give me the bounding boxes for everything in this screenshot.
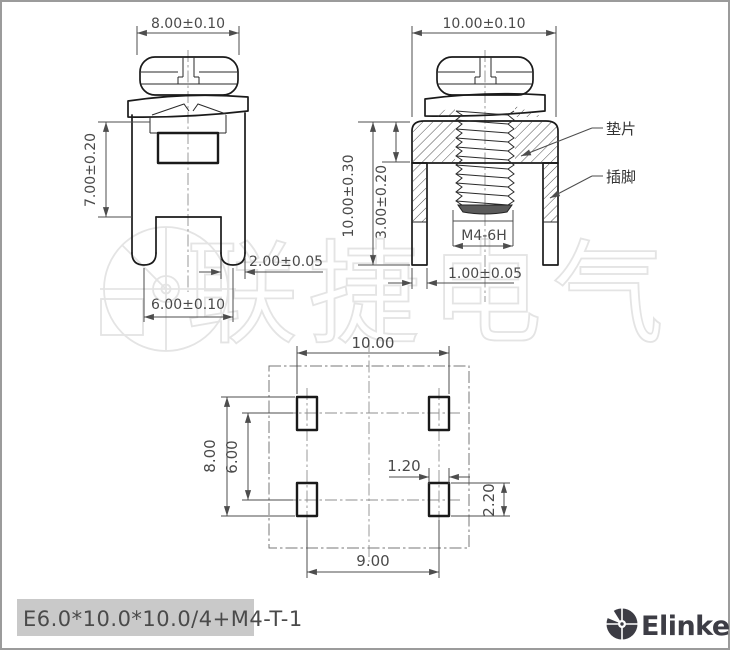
section-dim-washer-width: 10.00±0.10: [412, 16, 556, 117]
front-screw-head: [140, 57, 238, 95]
pin-label: 插脚: [606, 168, 636, 186]
svg-text:1.00±0.05: 1.00±0.05: [448, 266, 522, 282]
section-thread-spec: M4-6H: [453, 210, 513, 246]
front-screw-slot: [178, 57, 199, 84]
brand-logo-icon: [605, 608, 638, 640]
section-screw-slot: [475, 57, 496, 84]
svg-text:10.00±0.30: 10.00±0.30: [341, 155, 357, 238]
footprint-dim-row-pitch: 6.00: [223, 413, 293, 500]
svg-text:6.00: 6.00: [223, 440, 241, 473]
svg-text:10.00: 10.00: [352, 334, 395, 352]
svg-text:1.20: 1.20: [387, 457, 420, 475]
footprint-dim-col-pitch: 9.00: [307, 520, 439, 578]
watermark-text: 联捷电气: [186, 230, 674, 360]
svg-text:3.00±0.20: 3.00±0.20: [374, 165, 390, 239]
label-pin-leader: 插脚: [550, 168, 636, 198]
title-block: E6.0*10.0*10.0/4+M4-T-1: [17, 599, 303, 636]
svg-text:10.00±0.10: 10.00±0.10: [443, 16, 526, 32]
front-dim-head-width: 8.00±0.10: [137, 16, 239, 55]
svg-text:2.20: 2.20: [480, 483, 498, 516]
footprint-pads: [297, 397, 449, 516]
svg-text:M4-6H: M4-6H: [461, 228, 506, 244]
front-dim-body-height: 7.00±0.20: [83, 122, 150, 217]
washer-label: 垫片: [606, 120, 636, 138]
brand-logo: Elinker: [605, 608, 730, 642]
part-number: E6.0*10.0*10.0/4+M4-T-1: [23, 607, 303, 631]
brand-name: Elinker: [641, 611, 730, 642]
cad-drawing-page: 联捷电气: [0, 0, 730, 650]
technical-drawing-svg: 联捷电气: [0, 0, 730, 650]
svg-text:6.00±0.10: 6.00±0.10: [151, 297, 225, 313]
svg-text:9.00: 9.00: [356, 552, 389, 570]
svg-text:7.00±0.20: 7.00±0.20: [83, 133, 99, 207]
footprint-dim-pad-width: 1.20: [387, 457, 470, 484]
svg-text:8.00: 8.00: [201, 439, 219, 472]
section-dim-washer-thickness: 3.00±0.20: [374, 122, 410, 239]
svg-text:2.00±0.05: 2.00±0.05: [249, 254, 323, 270]
svg-text:8.00±0.10: 8.00±0.10: [151, 16, 225, 32]
footprint-view: 10.00 9.00 8.00 6.00 1.20: [201, 334, 510, 578]
